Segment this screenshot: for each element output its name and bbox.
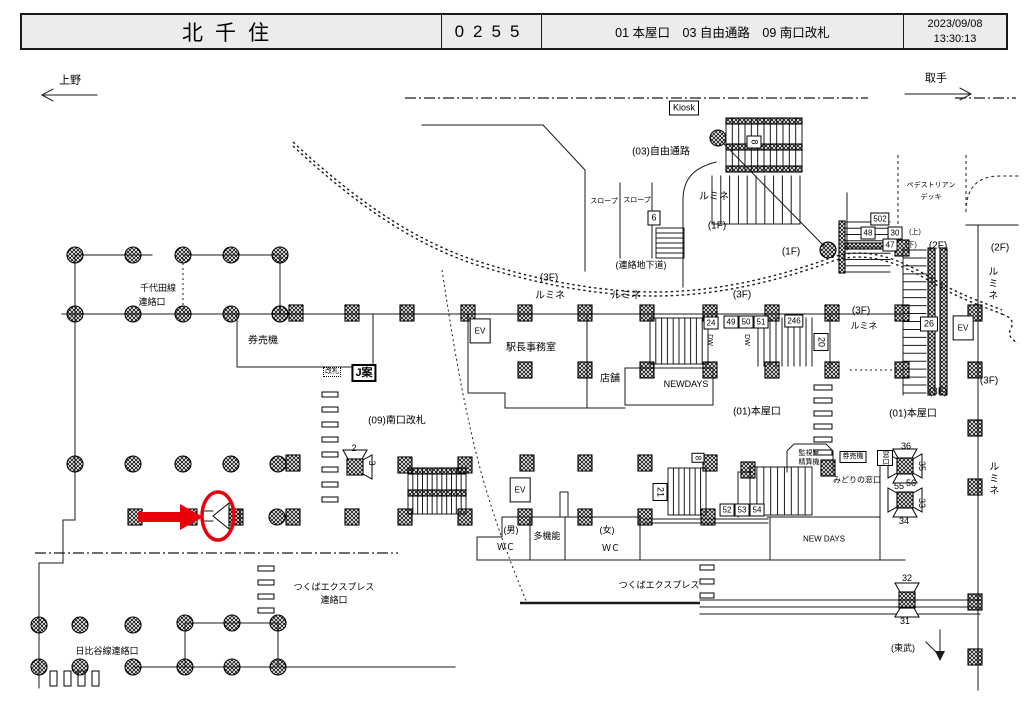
pillar-square-icon (286, 509, 300, 525)
sign-24: 24 (704, 317, 719, 330)
sign-36: 36 (901, 441, 911, 451)
sign-50: 50 (739, 316, 754, 329)
pillar-square-icon (518, 509, 532, 525)
sign-56: 56 (906, 478, 916, 488)
sign-26: 26 (920, 317, 938, 332)
sign-3: 3 (367, 460, 377, 465)
sign-34: 34 (899, 516, 909, 526)
tsukuba-express-renrakuguchi: つくばエクスプレス (294, 582, 375, 592)
floorplan-drawing (0, 0, 1024, 724)
floor-3f: (3F) (540, 272, 558, 284)
pillar-square-icon (968, 594, 982, 610)
pillar-square-icon (518, 305, 532, 321)
pillar-round-icon (125, 617, 141, 633)
pillar-square-icon (578, 509, 592, 525)
sign-32: 32 (902, 573, 912, 583)
area-01-honya: (01)本屋口 (889, 408, 937, 420)
pillar-round-icon (224, 659, 240, 675)
j-an-label: J案 (351, 364, 376, 382)
pillar-round-icon (223, 247, 239, 263)
sign-52: 52 (720, 504, 735, 517)
pillar-round-icon (223, 306, 239, 322)
pillar-square-icon (765, 362, 779, 378)
newdays-label: NEWDAYS (664, 379, 709, 389)
sign-246: 246 (784, 315, 803, 328)
dw-label: DW (742, 334, 750, 346)
pillar-round-icon (125, 659, 141, 675)
midori-no-madoguchi-label: みどりの窓口 (833, 475, 881, 484)
map-structure (31, 88, 1020, 690)
pillar-round-icon (223, 456, 239, 472)
highlight-arrow-icon (138, 504, 203, 530)
pillar-round-icon (125, 306, 141, 322)
pedestrian-deck-label: ペデストリアン (907, 182, 956, 190)
pillar-round-icon (272, 247, 288, 263)
sign-53: 53 (735, 504, 750, 517)
lumine-label: ルミネ (699, 191, 729, 203)
pillar-square-icon (701, 509, 715, 525)
pillar-square-icon (400, 305, 414, 321)
pillar-square-icon (520, 455, 534, 471)
tsukuba-express-label: つくばエクスプレス (619, 580, 700, 590)
pillar-square-icon (578, 362, 592, 378)
pillar-square-icon (578, 455, 592, 471)
pillar-square-icon (640, 305, 654, 321)
pillar-square-icon (458, 457, 472, 473)
mens-wc-label: ＷＣ (497, 542, 515, 552)
slope-label: スロープ (623, 197, 651, 205)
pillar-round-icon (31, 617, 47, 633)
womens-wc-label: (女) (600, 525, 615, 535)
newdays-label: NEW DAYS (803, 534, 845, 543)
floor-2f: (2F) (929, 240, 947, 252)
sign-35: 35 (917, 461, 927, 471)
lumine-label: ルミネ (611, 290, 641, 302)
pillar-round-icon (270, 456, 286, 472)
tsukuba-express-renrakuguchi: 連絡口 (320, 595, 347, 605)
sign-6: 6 (647, 211, 660, 226)
floor-3f: (3F) (929, 386, 947, 398)
kaisatsu-label: 改札 (323, 367, 341, 377)
pillar-round-icon (175, 456, 191, 472)
pillar-square-icon (825, 362, 839, 378)
pillar-round-icon (125, 247, 141, 263)
target-sign-icon (213, 503, 229, 529)
floor-3f: (3F) (852, 305, 870, 317)
sign-49: 49 (724, 316, 739, 329)
pillar-round-icon (72, 659, 88, 675)
floor-3f: (3F) (733, 289, 751, 301)
sign-47: 47 (883, 239, 898, 252)
lumine-label: ルミネ (535, 290, 565, 302)
pillar-square-icon (638, 455, 652, 471)
pillar-square-icon (229, 509, 243, 525)
multifunction-wc-label: 多機能 (533, 531, 560, 541)
sign-502: 502 (870, 213, 889, 226)
pillar-square-icon (968, 649, 982, 665)
station-map-page: 北千住 0255 01 本屋口 03 自由通路 09 南口改札 2023/09/… (0, 0, 1024, 724)
hibiya-line-label: 日比谷線連絡口 (75, 646, 138, 656)
sign-marker-icon (895, 583, 919, 592)
window-box: 窓口 (877, 450, 893, 466)
sign-2: 2 (351, 443, 356, 453)
pillar-round-icon (67, 456, 83, 472)
sign-21: 21 (653, 483, 668, 501)
slope-label: スロープ (590, 198, 618, 206)
pillar-square-icon (398, 509, 412, 525)
pillar-square-icon (398, 457, 412, 473)
lumine-label: ルミネ (985, 266, 997, 302)
stationmaster-office-label: 駅長事務室 (506, 342, 556, 354)
sign-marker-icon (888, 488, 897, 512)
pillar-square-icon (821, 460, 835, 476)
pillar-square-icon (289, 305, 303, 321)
pillar-round-icon (270, 659, 286, 675)
pillar-square-icon (895, 362, 909, 378)
sign-54: 54 (750, 504, 765, 517)
pillar-round-icon (272, 306, 288, 322)
floor-3f: (3F) (980, 375, 998, 387)
sign-33: 33 (917, 498, 927, 508)
mens-wc-label: (男) (504, 525, 519, 535)
pillar-square-icon (895, 305, 909, 321)
floor-2f: (2F) (991, 242, 1009, 254)
pillar-square-icon (703, 455, 717, 471)
lumine-label: ルミネ (986, 461, 998, 497)
sign-55: 55 (894, 481, 904, 491)
pillar-round-icon (224, 615, 240, 631)
pillar-round-icon (125, 456, 141, 472)
pillar-round-icon (177, 659, 193, 675)
elevator-label: EV (953, 315, 974, 340)
chiyoda-line-label: 千代田線 (140, 283, 176, 293)
pillar-round-icon (175, 247, 191, 263)
pillar-square-icon (825, 305, 839, 321)
tobu-label: (東武) (891, 643, 915, 653)
pillar-round-icon (269, 509, 285, 525)
area-09-south-gate: (09)南口改札 (368, 415, 426, 427)
elevator-label: EV (510, 477, 531, 502)
shop-label: 店舗 (600, 373, 620, 385)
direction-toride: 取手 (925, 73, 947, 86)
fare-adjust-label: 精算機 (799, 459, 820, 467)
pillar-square-icon (968, 479, 982, 495)
kiosk-label: Kiosk (669, 101, 699, 116)
pillar-round-icon (67, 306, 83, 322)
pillar-round-icon (820, 242, 836, 258)
pillar-square-icon (345, 509, 359, 525)
pillar-round-icon (72, 617, 88, 633)
pillar-square-icon (968, 420, 982, 436)
area-01-honya: (01)本屋口 (733, 406, 781, 418)
ticket-machine-box: 券売機 (840, 451, 867, 463)
pillar-square-icon (345, 305, 359, 321)
underpass-label: (連絡地下道) (616, 260, 667, 270)
sign-8: 8 (747, 135, 762, 148)
floor-1f: (1F) (782, 246, 800, 258)
pillar-round-icon (710, 130, 726, 146)
sign-20: 20 (814, 333, 829, 351)
womens-wc-label: ＷＣ (602, 543, 620, 553)
pillar-square-icon (286, 455, 300, 471)
pillar-square-icon (458, 509, 472, 525)
pillar-square-icon (741, 462, 755, 478)
sign-8b: 8 (692, 453, 705, 463)
monitor-room-label: 監視室 (799, 450, 820, 458)
floor-1f: (1F) (708, 220, 726, 232)
elevator-label: EV (470, 318, 491, 343)
up-label: (上) (909, 229, 921, 237)
pillar-round-icon (177, 615, 193, 631)
pillar-square-icon (638, 509, 652, 525)
pillar-round-icon (175, 306, 191, 322)
ticket-machines-label: 券売機 (248, 335, 278, 347)
direction-ueno: 上野 (59, 75, 81, 88)
pillar-square-icon (640, 362, 654, 378)
pedestrian-deck-label: デッキ (921, 194, 942, 202)
pillar-round-icon (270, 615, 286, 631)
down-label: (下) (905, 242, 917, 250)
chiyoda-line-label: 連絡口 (138, 297, 165, 307)
sign-31: 31 (900, 616, 910, 626)
pillar-round-icon (67, 247, 83, 263)
area-03-jiyutsuro: (03)自由通路 (632, 146, 690, 158)
pillar-round-icon (31, 659, 47, 675)
dw-label: DW (705, 334, 713, 346)
sign-marker-icon (363, 455, 372, 479)
sign-48: 48 (861, 227, 876, 240)
pillar-square-icon (703, 362, 717, 378)
pillar-square-icon (518, 362, 532, 378)
sign-51: 51 (754, 316, 769, 329)
lumine-label: ルミネ (850, 321, 877, 331)
pillar-square-icon (578, 305, 592, 321)
